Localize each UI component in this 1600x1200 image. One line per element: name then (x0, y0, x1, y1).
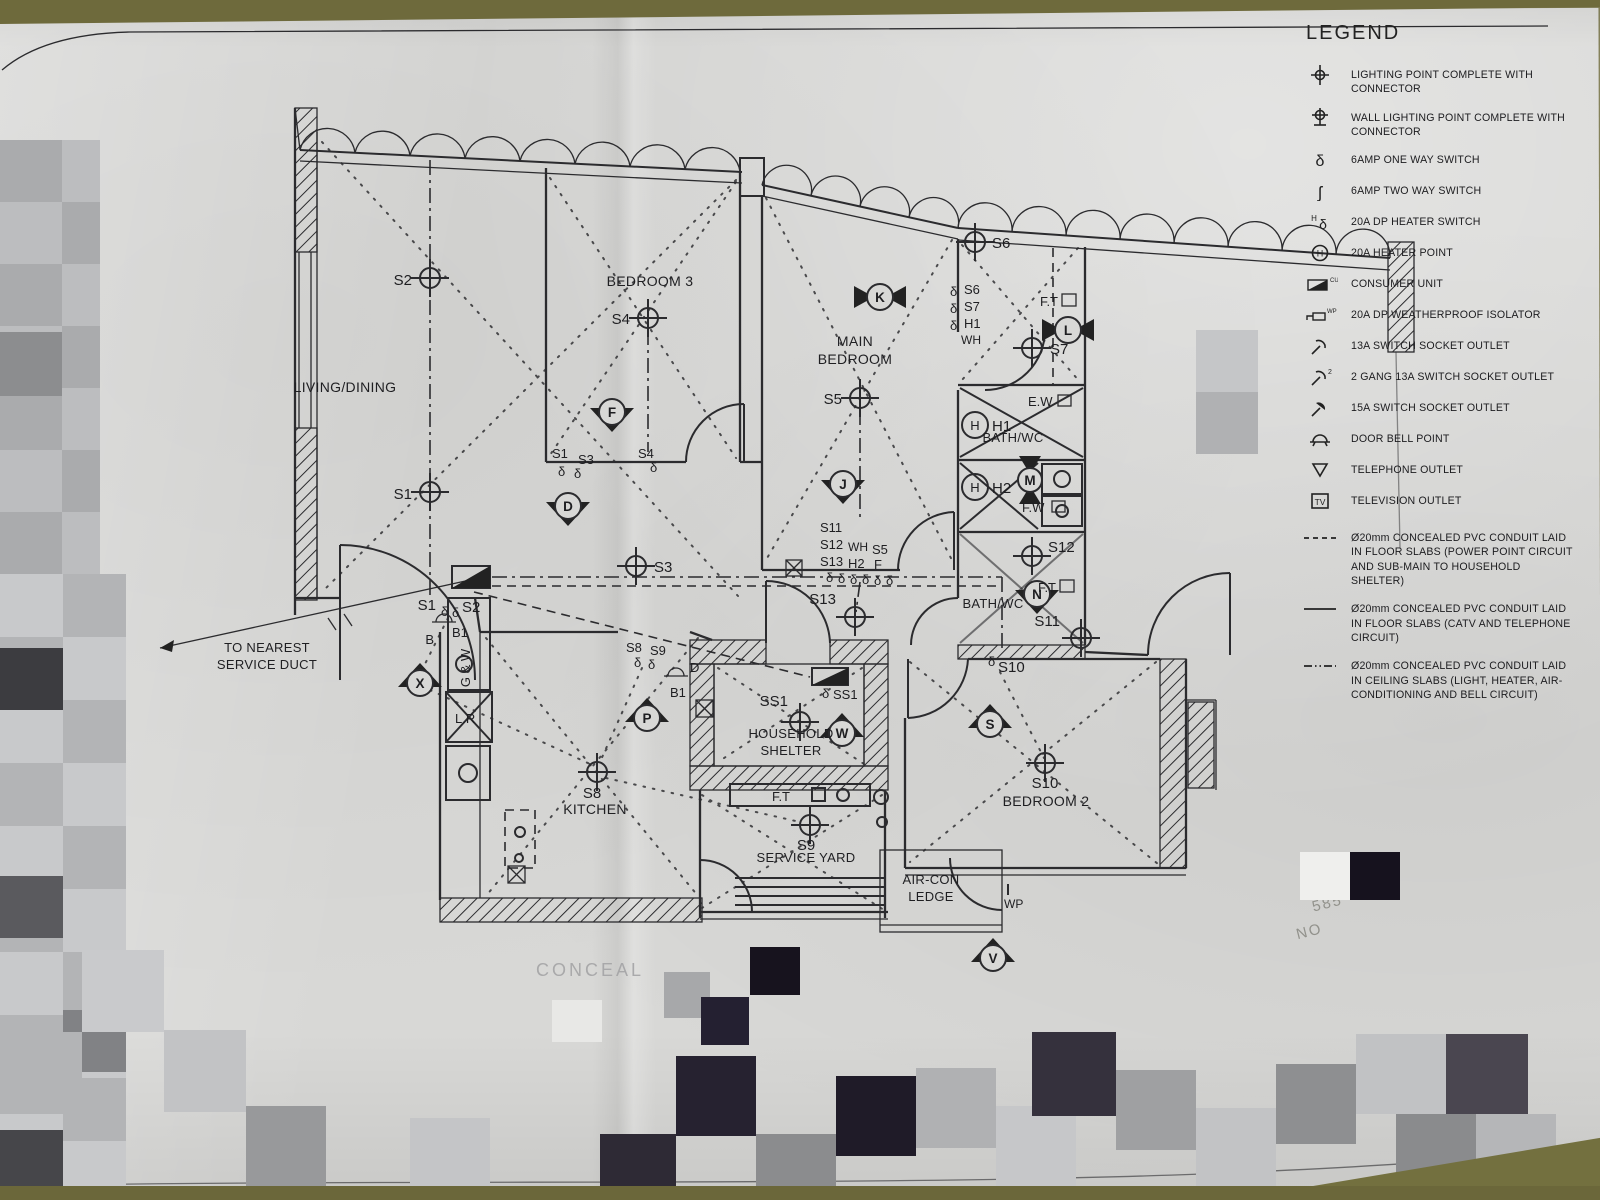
censor-block (1300, 852, 1350, 900)
wall-pier (740, 158, 764, 196)
light-label: S13 (809, 591, 836, 608)
svg-text:D: D (690, 660, 699, 675)
svg-text:F: F (874, 557, 882, 572)
svg-text:H2: H2 (848, 556, 865, 571)
left-wall (295, 108, 317, 615)
fan-m: M (1018, 456, 1042, 504)
table-surface-bottom (0, 1186, 1600, 1200)
svg-text:S4: S4 (638, 446, 654, 461)
room-label-aircon-ledge: AIR-CON LEDGE (892, 872, 970, 906)
svg-text:δ: δ (874, 573, 881, 588)
light-label: S11 (1034, 613, 1060, 630)
svg-text:S9: S9 (650, 643, 666, 658)
svg-text:δ: δ (950, 301, 957, 316)
conduit-dashdot-icon (1302, 656, 1338, 676)
weatherproof-isolator-icon: WP (1302, 305, 1338, 325)
svg-text:S1: S1 (552, 446, 568, 461)
legend-item: δ 6AMP ONE WAY SWITCH (1302, 150, 1574, 170)
censor-block (1446, 1034, 1528, 1114)
svg-text:F.W: F.W (1022, 500, 1045, 515)
interior-walls (295, 168, 1216, 932)
svg-text:F.T: F.T (772, 789, 790, 804)
legend-item: 2 2 GANG 13A SWITCH SOCKET OUTLET (1302, 367, 1574, 387)
telephone-outlet-icon (1302, 460, 1338, 480)
svg-text:WH: WH (961, 333, 981, 347)
svg-text:S3: S3 (578, 452, 594, 467)
legend-item: Ø20mm CONCEALED PVC CONDUIT LAID IN FLOO… (1302, 528, 1574, 588)
svg-text:δ: δ (452, 605, 459, 620)
svg-text:δ: δ (886, 573, 893, 588)
room-label-bath-upper: BATH/WC (968, 430, 1058, 447)
svg-text:E.W: E.W (1028, 394, 1053, 409)
light-label: S2 (394, 272, 412, 289)
svg-text:δ: δ (1319, 216, 1327, 232)
svg-text:S8: S8 (626, 640, 642, 655)
censor-block (836, 1076, 916, 1156)
room-label-main-bedroom: MAIN BEDROOM (812, 332, 898, 368)
fan-f: F (590, 399, 634, 432)
svg-text:δ: δ (634, 655, 641, 670)
socket-13a-icon (1302, 336, 1338, 356)
censor-block (996, 1106, 1076, 1186)
svg-text:F.T: F.T (1040, 294, 1058, 309)
censor-block (0, 332, 62, 396)
svg-text:H1: H1 (964, 316, 981, 331)
fan-k: K (854, 284, 906, 310)
censor-block (552, 1000, 602, 1042)
svg-text:δ: δ (574, 466, 581, 481)
legend-item: Ø20mm CONCEALED PVC CONDUIT LAID IN FLOO… (1302, 599, 1574, 645)
fan-l: L (1042, 317, 1094, 343)
svg-text:L.R: L.R (455, 711, 475, 726)
legend-title: LEGEND (1306, 22, 1574, 45)
censor-block (750, 947, 800, 995)
censor-block (0, 876, 63, 938)
svg-text:S11: S11 (820, 520, 842, 535)
svg-text:δ: δ (950, 284, 957, 299)
svg-text:CU: CU (1330, 278, 1338, 284)
censor-block (0, 1032, 82, 1114)
room-label-kitchen: KITCHEN (545, 800, 645, 818)
fan-d: D (546, 493, 590, 526)
svg-text:WH: WH (848, 540, 868, 554)
svg-text:S1: S1 (418, 597, 436, 614)
svg-text:S2: S2 (462, 599, 480, 616)
censor-block (246, 1106, 326, 1186)
window-band-living (300, 128, 742, 183)
censor-block (0, 648, 63, 710)
svg-text:2: 2 (1328, 369, 1332, 376)
legend-item: Ø20mm CONCEALED PVC CONDUIT LAID IN CEIL… (1302, 656, 1574, 702)
svg-text:B1: B1 (452, 625, 468, 640)
svg-text:δ: δ (826, 570, 833, 585)
censor-block (676, 1056, 756, 1136)
legend-item: H 20A HEATER POINT (1302, 243, 1574, 263)
censor-block (82, 950, 164, 1032)
censor-block (701, 997, 749, 1045)
svg-text:δ: δ (648, 657, 655, 672)
light-label: S10 (1032, 775, 1059, 792)
legend-item: WP 20A DP WEATHERPROOF ISOLATOR (1302, 305, 1574, 325)
wall-lighting-point-icon (1302, 108, 1338, 128)
socket-13a-2gang-icon: 2 (1302, 367, 1338, 387)
svg-text:B1: B1 (670, 685, 686, 700)
heater-label: H2 (992, 480, 1011, 497)
heater-point-icon: H (1302, 243, 1338, 263)
fan-s: S (968, 704, 1012, 737)
svg-text:H: H (1317, 249, 1324, 259)
photo-of-electrical-floor-plan: S2 S1 S3 S4 S5 S6 S7 S8 S9 S10 S11 S12 S… (0, 0, 1600, 1200)
svg-text:P: P (642, 711, 651, 726)
light-label: SS1 (760, 693, 788, 710)
doors (340, 330, 1230, 912)
svg-text:L: L (1064, 323, 1072, 338)
svg-text:δ: δ (822, 686, 829, 701)
censor-block (1356, 1034, 1446, 1114)
legend-item: ʃ 6AMP TWO WAY SWITCH (1302, 181, 1574, 201)
legend-item: WALL LIGHTING POINT COMPLETE WITH CONNEC… (1302, 108, 1574, 140)
censor-block (1032, 1032, 1116, 1116)
svg-text:S5: S5 (872, 542, 888, 557)
room-label-bath-lower: BATH/WC (948, 596, 1038, 613)
svg-text:D: D (563, 499, 573, 514)
svg-text:δ: δ (838, 571, 845, 586)
legend-item: Hδ 20A DP HEATER SWITCH (1302, 212, 1574, 232)
censor-block (1196, 392, 1258, 454)
svg-text:TV: TV (1315, 497, 1326, 507)
window-band-main-bedroom (762, 165, 959, 239)
legend: LEGEND LIGHTING POINT COMPLETE WITH CONN… (1302, 22, 1574, 713)
legend-item: 13A SWITCH SOCKET OUTLET (1302, 336, 1574, 356)
svg-text:δ: δ (850, 572, 857, 587)
door-bell-icon (664, 668, 688, 676)
svg-text:J: J (839, 477, 847, 492)
svg-text:δ: δ (650, 460, 657, 475)
censor-block (1196, 1108, 1276, 1188)
light-label: S4 (612, 311, 630, 328)
svg-text:F.T: F.T (1038, 580, 1056, 595)
svg-text:S: S (985, 717, 994, 732)
room-label-household-shelter: HOUSEHOLD SHELTER (742, 726, 840, 760)
shelter-db-symbol (812, 668, 848, 685)
fan-j: J (821, 471, 865, 504)
legend-item: 15A SWITCH SOCKET OUTLET (1302, 398, 1574, 418)
legend-item: LIGHTING POINT COMPLETE WITH CONNECTOR (1302, 65, 1574, 97)
legend-item: TELEPHONE OUTLET (1302, 460, 1574, 480)
svg-text:F: F (608, 405, 616, 420)
svg-text:V: V (988, 951, 997, 966)
censor-block (1276, 1064, 1356, 1144)
svg-text:S12: S12 (820, 537, 843, 552)
svg-text:WP: WP (1327, 309, 1337, 315)
censor-block (1196, 330, 1258, 392)
censor-block (1350, 852, 1400, 900)
light-label: S3 (654, 559, 672, 576)
light-label: S1 (394, 486, 412, 503)
censor-block (916, 1068, 996, 1148)
socket-15a-icon (1302, 398, 1338, 418)
two-way-switch-icon: ʃ (1302, 181, 1338, 201)
household-shelter-walls (508, 560, 888, 883)
svg-text:WP: WP (1004, 897, 1023, 911)
lighting-point-icon (1302, 65, 1338, 85)
svg-text:δ: δ (862, 572, 869, 587)
room-label-service-yard: SERVICE YARD (745, 850, 867, 867)
svg-text:B: B (425, 632, 434, 647)
svg-text:ʃ: ʃ (1317, 183, 1323, 201)
svg-text:M: M (1024, 473, 1035, 488)
light-label: S6 (992, 235, 1010, 252)
room-label-bedroom2: BEDROOM 2 (985, 792, 1107, 810)
light-label: S12 (1048, 539, 1075, 556)
svg-text:δ: δ (950, 318, 957, 333)
fan-p: P (625, 698, 669, 731)
one-way-switch-icon: δ (1302, 150, 1338, 170)
legend-item: DOOR BELL POINT (1302, 429, 1574, 449)
note-service-duct: TO NEAREST SERVICE DUCT (203, 640, 331, 674)
svg-text:S13: S13 (820, 554, 843, 569)
television-outlet-icon: TV (1302, 491, 1338, 511)
consumer-unit-symbol (452, 566, 490, 588)
fan-v: V (971, 938, 1015, 971)
censor-block (0, 1130, 63, 1194)
svg-text:G & W: G & W (458, 648, 473, 687)
footer-partial-text: CONCEAL (536, 960, 644, 981)
conduit-solid-icon (1302, 599, 1338, 619)
svg-text:δ: δ (1316, 153, 1325, 170)
svg-text:SS1: SS1 (833, 687, 858, 702)
legend-item: TV TELEVISION OUTLET (1302, 491, 1574, 511)
censor-block (164, 1030, 246, 1112)
svg-text:δ: δ (988, 654, 995, 669)
light-label: S5 (824, 391, 842, 408)
svg-text:S6: S6 (964, 282, 980, 297)
svg-text:S10: S10 (998, 659, 1025, 676)
svg-text:δ: δ (441, 604, 448, 619)
conduit-dashed-icon (1302, 528, 1338, 548)
censor-block (1116, 1070, 1196, 1150)
room-label-bedroom3: BEDROOM 3 (570, 272, 730, 290)
conduit-runs (160, 160, 1002, 677)
heater-switch-icon: Hδ (1302, 212, 1338, 232)
svg-text:S7: S7 (964, 299, 980, 314)
room-label-living: LIVING/DINING (250, 378, 440, 396)
fan-x: X (398, 663, 442, 696)
door-bell-icon (1302, 429, 1338, 449)
legend-item: CU CONSUMER UNIT (1302, 274, 1574, 294)
svg-text:K: K (875, 290, 885, 305)
svg-text:H: H (970, 480, 979, 495)
svg-text:X: X (415, 676, 424, 691)
svg-text:δ: δ (558, 464, 565, 479)
svg-text:H: H (1311, 214, 1317, 223)
consumer-unit-icon: CU (1302, 274, 1338, 294)
